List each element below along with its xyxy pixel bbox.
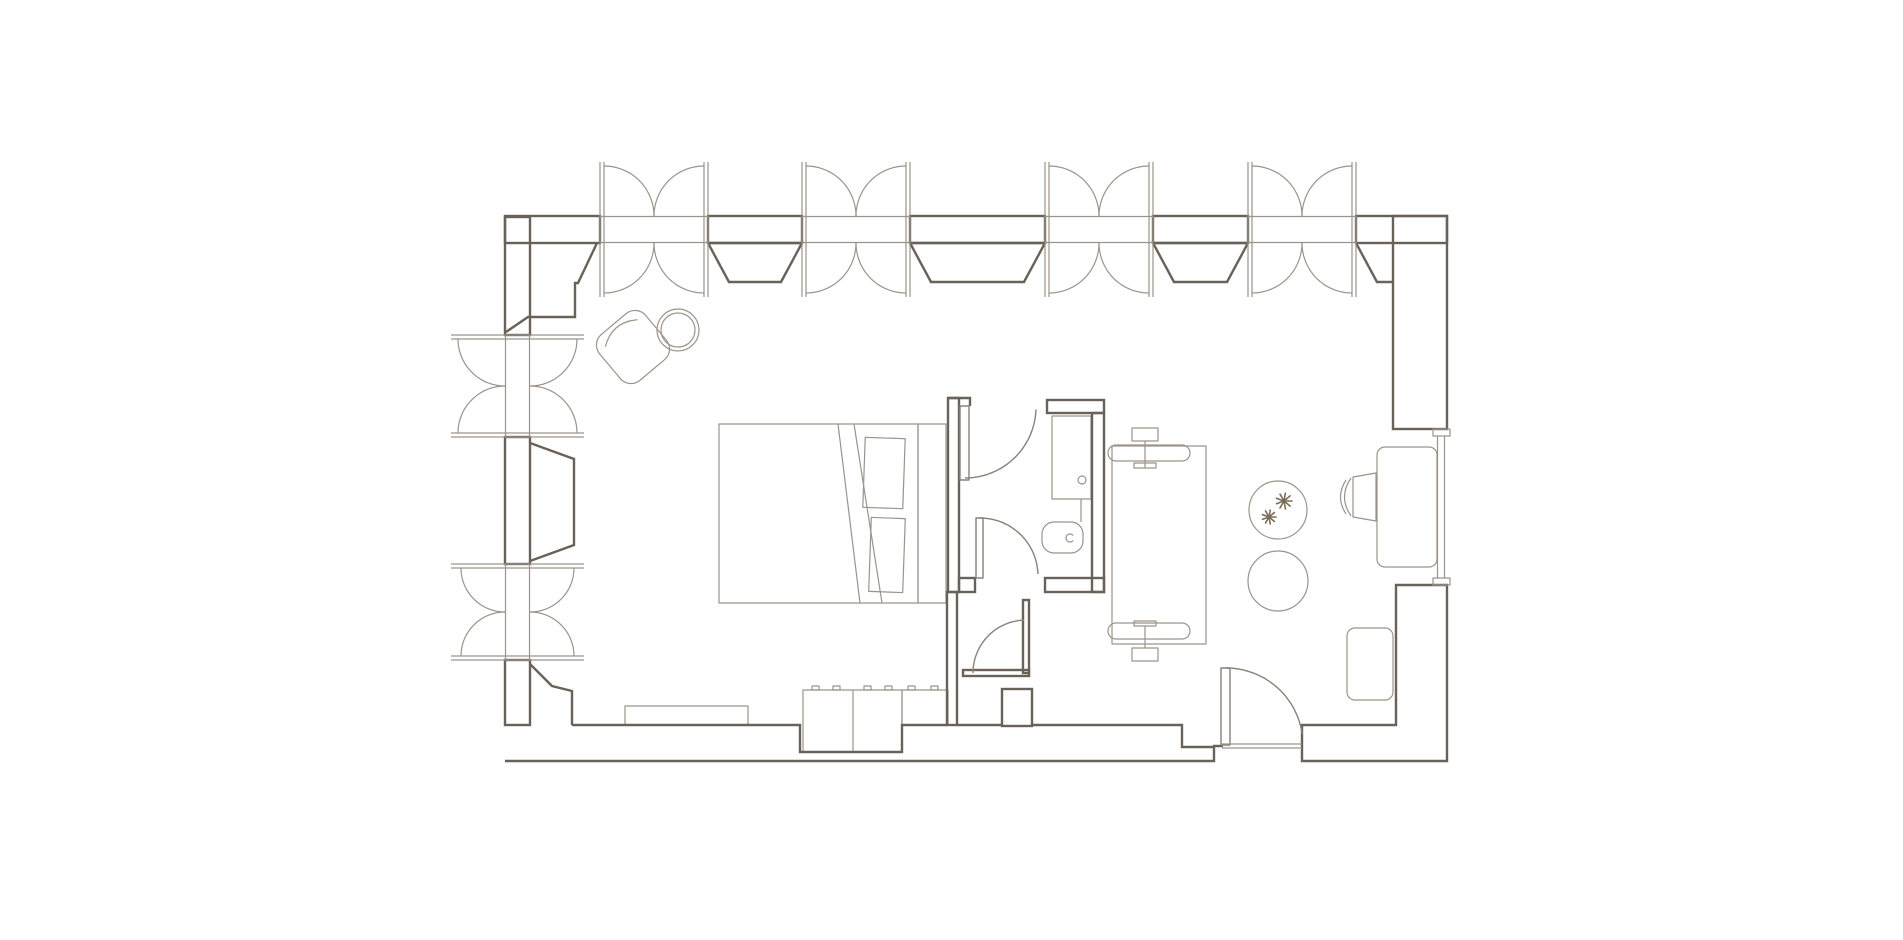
left-wall-piers: [530, 443, 574, 725]
casement-window-top-1: [600, 162, 708, 297]
left-wall-bands: [505, 217, 530, 725]
top-windows-layer: [600, 162, 1356, 297]
shower-door: [976, 518, 1038, 578]
left-windows-layer: [451, 335, 584, 660]
plant-table: [1249, 481, 1307, 539]
desk: [1377, 447, 1437, 567]
plant-icon: [1276, 493, 1292, 509]
floor-plan-drawing: [0, 0, 1903, 940]
foot-bench: [625, 706, 748, 725]
bed: [719, 424, 946, 603]
bathroom-walls: [947, 398, 1104, 725]
casement-window-top-2: [802, 162, 910, 297]
bathroom-door: [960, 406, 1036, 480]
casement-window-top-4: [1248, 162, 1356, 297]
console-cabinet: [803, 686, 948, 752]
right-fixed-window: [1433, 429, 1450, 585]
ottoman: [1347, 628, 1393, 700]
round-table: [1248, 551, 1308, 611]
entry-door: [1221, 668, 1302, 748]
armchair: [591, 305, 676, 390]
walls-layer: [505, 216, 1450, 761]
casement-window-top-3: [1045, 162, 1153, 297]
desk-chair: [1341, 473, 1377, 521]
bidet: [1042, 522, 1083, 553]
daybed-luggage-bench: [1108, 428, 1206, 661]
floor-plan: [0, 0, 1903, 940]
plant-icon: [1262, 510, 1276, 524]
doors-layer: [960, 406, 1302, 748]
casement-window-left-2: [451, 564, 584, 660]
top-wall-piers: [506, 243, 1393, 332]
vanity: [1052, 416, 1091, 522]
side-table: [657, 309, 699, 351]
corridor-door: [973, 620, 1024, 673]
casement-window-left-1: [451, 335, 584, 437]
bottom-wall: [505, 689, 1223, 761]
right-wall-top-block: [1393, 216, 1447, 429]
right-wall-bottom-block: [1302, 585, 1447, 761]
top-wall-bands: [505, 216, 1447, 243]
